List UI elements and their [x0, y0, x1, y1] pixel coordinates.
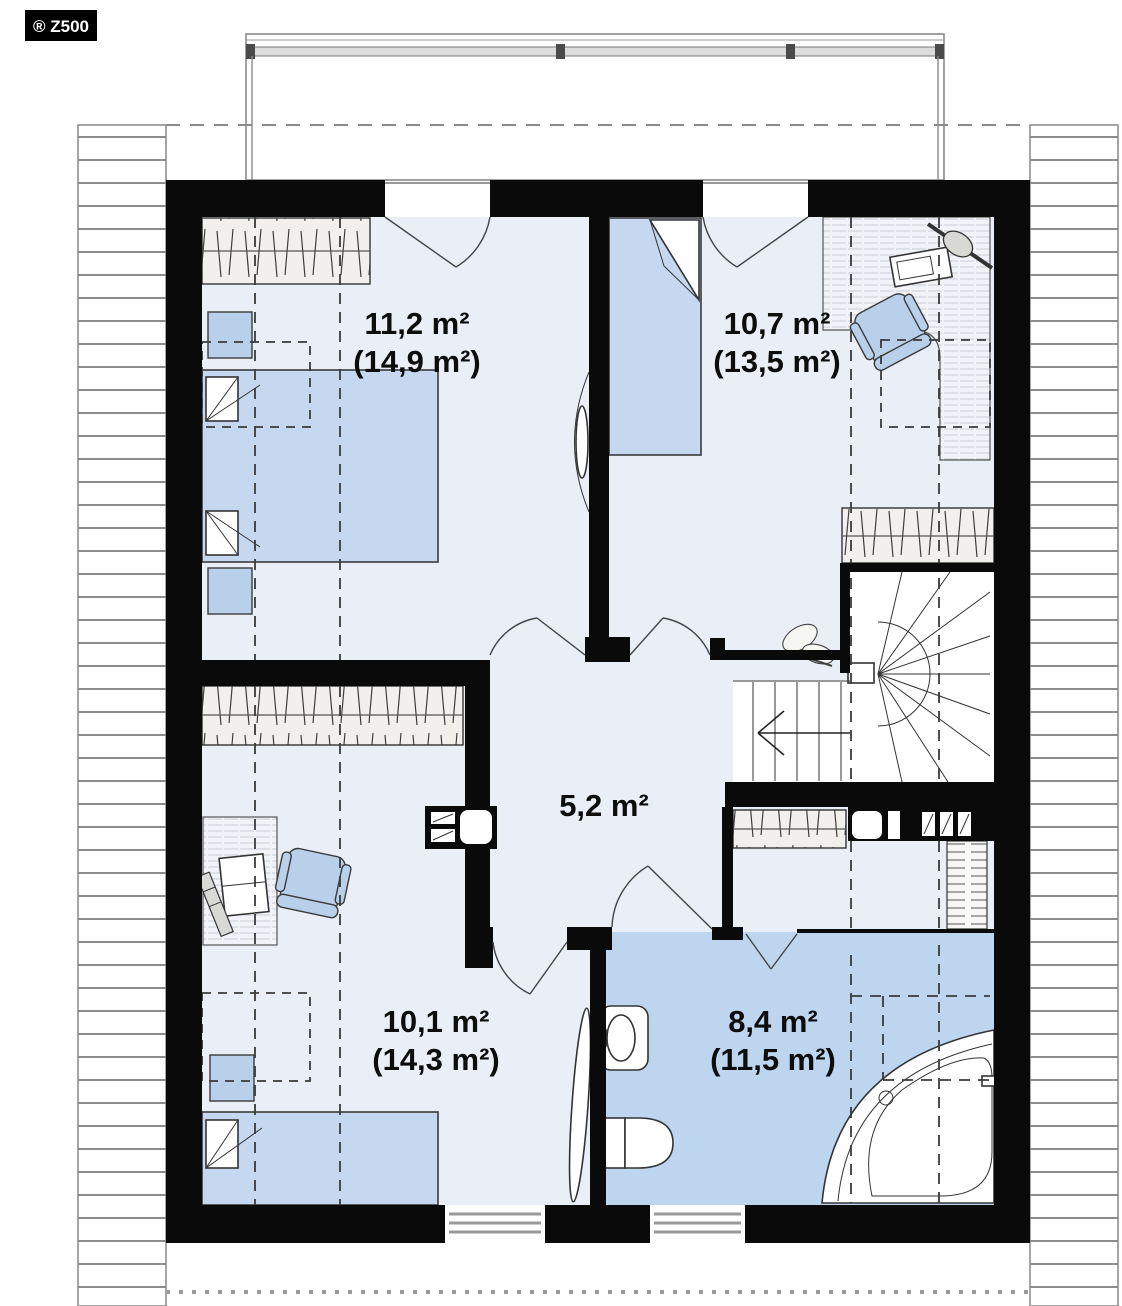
room-label-bedroom-2-area: 10,7 m² — [724, 306, 831, 341]
balcony — [246, 34, 944, 180]
roof-overhang-right — [1030, 125, 1118, 1306]
laptop — [219, 854, 269, 916]
nightstand — [208, 568, 252, 614]
room-label-hall-area: 5,2 m² — [559, 788, 649, 823]
wardrobe — [202, 218, 370, 284]
toilet — [603, 1118, 673, 1168]
wardrobe — [842, 508, 994, 563]
room-label-bedroom-3-total: (14,3 m²) — [372, 1042, 499, 1077]
room-label-bedroom-1-total: (14,9 m²) — [353, 344, 480, 379]
single-bed — [609, 218, 701, 455]
room-label-bedroom-1-area: 11,2 m² — [364, 306, 469, 341]
room-label-bedroom-2-total: (13,5 m²) — [713, 344, 840, 379]
room-label-bathroom-total: (11,5 m²) — [710, 1042, 836, 1077]
stair-flight-floor — [733, 680, 850, 782]
room-label-bedroom-3-area: 10,1 m² — [383, 1004, 490, 1039]
wardrobe — [202, 686, 463, 745]
brand-logo: ® Z500 — [25, 10, 97, 41]
desk — [197, 817, 277, 945]
chimney-flue-block — [425, 806, 497, 849]
roof-overhang-left — [78, 125, 166, 1306]
floor-plan-page: 11,2 m² (14,9 m²) 10,7 m² (1 — [0, 0, 1122, 1306]
window — [650, 1205, 745, 1243]
double-bed — [202, 370, 438, 562]
window — [445, 1205, 545, 1243]
nightstand — [210, 1055, 254, 1101]
room-label-bathroom-area: 8,4 m² — [728, 1004, 818, 1039]
stair-newel — [848, 663, 874, 683]
single-bed — [202, 1112, 438, 1205]
nightstand — [208, 312, 252, 358]
shelving — [947, 841, 987, 929]
wardrobe — [733, 810, 846, 848]
floor-plan-canvas: 11,2 m² (14,9 m²) 10,7 m² (1 — [0, 0, 1122, 1306]
balcony-railing — [252, 47, 938, 56]
brand-logo-text: ® Z500 — [33, 17, 89, 36]
bathtub-faucet — [982, 1076, 995, 1086]
